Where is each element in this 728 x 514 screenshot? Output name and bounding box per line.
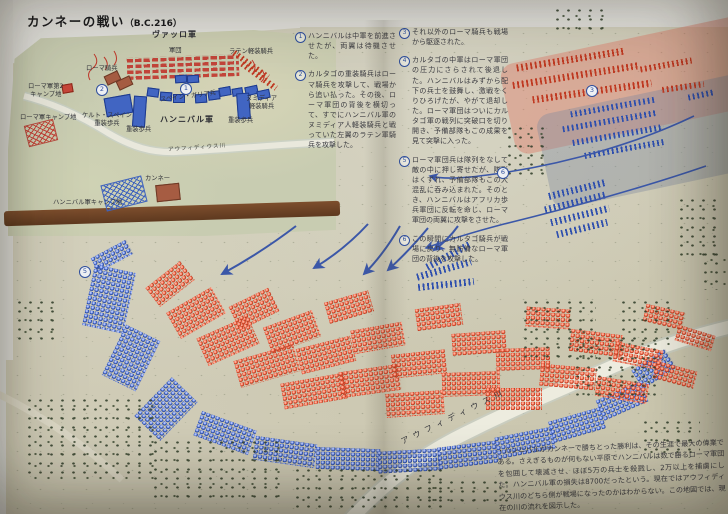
map-marker-1: 1	[180, 83, 192, 95]
book-photo-battle-of-cannae: カンネーの戦い（B.C.216） ヴァッロ軍 軍団 ラテン軽装騎兵 ローマ騎兵 …	[0, 0, 728, 514]
map-marker-3: 3	[586, 85, 598, 97]
map-marker-6: 6	[497, 167, 509, 179]
map-marker-2: 2	[96, 84, 108, 96]
markers-layer: 21356	[0, 0, 728, 514]
map-marker-5: 5	[79, 266, 91, 278]
